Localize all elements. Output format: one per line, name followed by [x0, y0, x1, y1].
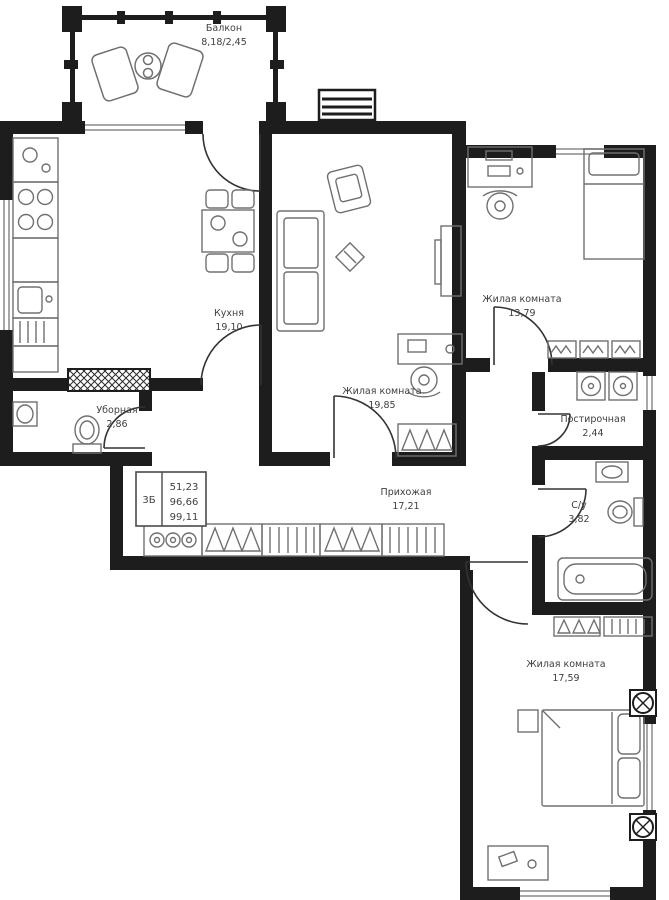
area-info-table: 3Б 51,23 96,66 99,11	[136, 472, 206, 526]
living-area-value: 51,23	[170, 482, 199, 493]
window-top-right	[556, 145, 604, 158]
svg-text:3,82: 3,82	[568, 514, 589, 525]
svg-text:Постирочная: Постирочная	[560, 414, 625, 425]
window-left	[0, 200, 13, 330]
window-bottom	[520, 887, 610, 900]
vent-shaft-icon	[68, 369, 150, 391]
apartment-type-label: 3Б	[142, 495, 155, 506]
svg-text:8,18/2,45: 8,18/2,45	[201, 37, 247, 48]
svg-text:17,59: 17,59	[552, 673, 579, 684]
window-bedroom-right	[643, 724, 656, 810]
svg-text:Жилая комната: Жилая комната	[342, 386, 421, 397]
svg-text:Жилая комната: Жилая комната	[482, 294, 561, 305]
exterior-unit-icon	[319, 90, 375, 120]
svg-text:2,86: 2,86	[106, 419, 127, 430]
svg-text:Жилая комната: Жилая комната	[526, 659, 605, 670]
svg-text:Уборная: Уборная	[96, 405, 137, 416]
svg-text:Прихожая: Прихожая	[381, 487, 432, 498]
svg-text:Балкон: Балкон	[206, 23, 242, 34]
floor-plan: 3Б 51,23 96,66 99,11 Балкон 8,18/2,45 Ку…	[0, 0, 669, 900]
svg-text:Кухня: Кухня	[214, 308, 244, 319]
svg-text:13,79: 13,79	[508, 308, 535, 319]
total-area-value: 99,11	[170, 512, 199, 523]
floor-plan-svg: 3Б 51,23 96,66 99,11 Балкон 8,18/2,45 Ку…	[0, 0, 669, 900]
svg-text:17,21: 17,21	[392, 501, 419, 512]
svg-text:С/у: С/у	[571, 500, 587, 511]
svg-text:19,10: 19,10	[215, 322, 242, 333]
balcony-door-opening	[203, 121, 259, 134]
svg-text:19,85: 19,85	[368, 400, 395, 411]
area-no-balcony-value: 96,66	[170, 497, 199, 508]
window-laundry	[643, 376, 656, 410]
svg-text:2,44: 2,44	[582, 428, 603, 439]
window-balcony	[85, 121, 185, 134]
